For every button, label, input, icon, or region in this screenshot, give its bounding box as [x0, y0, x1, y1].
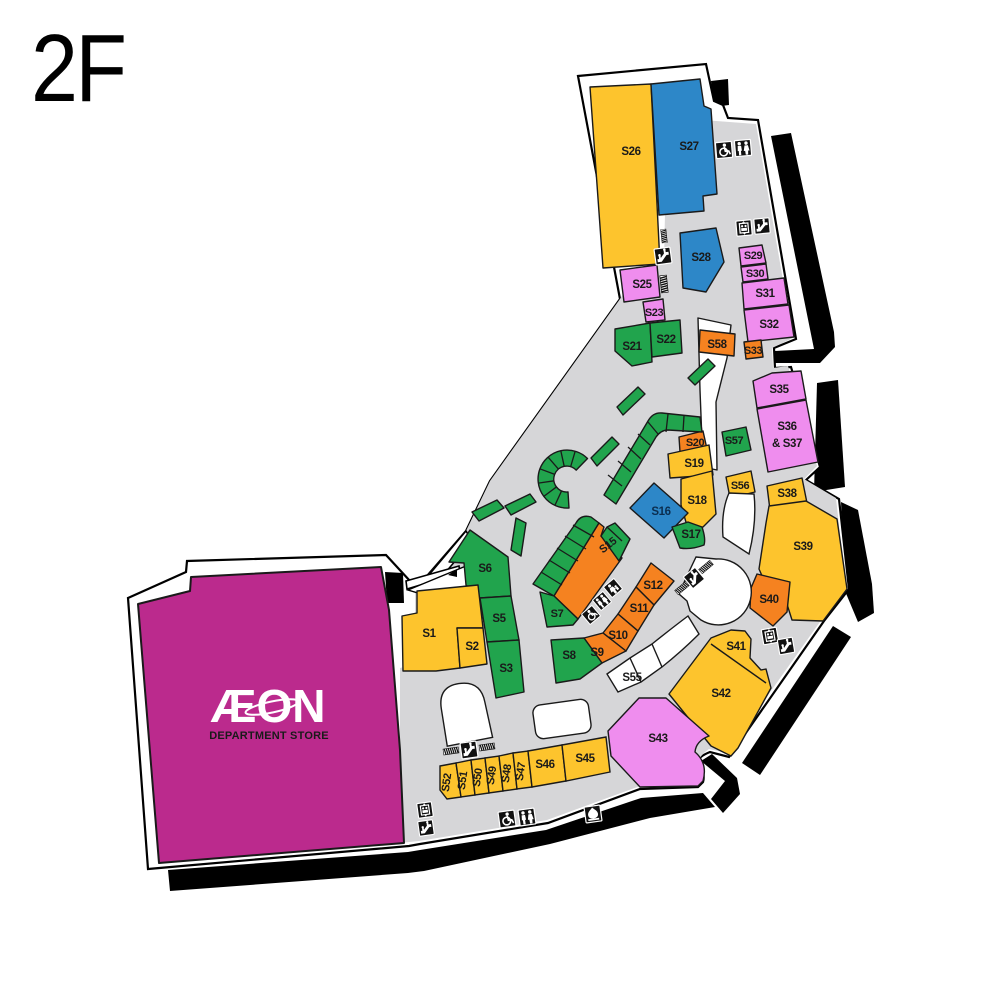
svg-text:S36: S36: [777, 421, 796, 433]
svg-text:S16: S16: [651, 506, 670, 518]
svg-text:2F: 2F: [31, 15, 124, 122]
svg-text:S22: S22: [656, 334, 675, 346]
svg-text:S42: S42: [711, 688, 730, 700]
svg-text:S35: S35: [769, 384, 789, 396]
svg-text:S2: S2: [465, 641, 478, 653]
svg-text:S18: S18: [687, 495, 707, 507]
svg-text:S21: S21: [622, 341, 642, 353]
svg-text:S25: S25: [632, 279, 652, 291]
svg-text:S47: S47: [514, 761, 528, 781]
svg-text:S55: S55: [622, 672, 642, 684]
svg-text:S3: S3: [499, 663, 512, 675]
svg-text:S28: S28: [691, 252, 711, 264]
svg-text:S33: S33: [744, 345, 763, 357]
svg-text:S11: S11: [630, 603, 650, 615]
svg-text:S56: S56: [731, 480, 750, 492]
svg-text:S43: S43: [648, 733, 667, 745]
svg-text:S20: S20: [686, 437, 705, 449]
svg-text:S51: S51: [456, 770, 470, 790]
svg-text:S12: S12: [643, 580, 662, 592]
svg-text:S7: S7: [551, 608, 564, 620]
svg-text:S46: S46: [535, 759, 554, 771]
svg-text:S1: S1: [422, 628, 436, 640]
svg-text:S40: S40: [759, 594, 778, 606]
svg-text:S48: S48: [500, 763, 514, 783]
svg-text:S49: S49: [485, 765, 499, 785]
svg-text:DEPARTMENT STORE: DEPARTMENT STORE: [209, 730, 329, 742]
svg-text:S30: S30: [746, 268, 765, 280]
svg-text:S52: S52: [440, 772, 454, 792]
svg-text:S9: S9: [590, 647, 603, 659]
svg-text:S17: S17: [681, 529, 700, 541]
svg-text:S29: S29: [744, 250, 763, 262]
svg-text:S38: S38: [777, 488, 797, 500]
svg-text:ÆON: ÆON: [211, 680, 326, 732]
svg-text:S19: S19: [684, 458, 703, 470]
svg-text:S23: S23: [645, 307, 664, 319]
svg-text:S27: S27: [679, 141, 698, 153]
svg-text:S50: S50: [471, 767, 485, 787]
svg-text:S10: S10: [608, 630, 627, 642]
svg-text:S39: S39: [793, 541, 812, 553]
svg-text:& S37: & S37: [772, 438, 802, 450]
svg-text:S31: S31: [755, 288, 775, 300]
svg-text:S5: S5: [492, 613, 506, 625]
svg-text:S8: S8: [562, 650, 576, 662]
svg-text:S6: S6: [478, 563, 491, 575]
svg-text:S57: S57: [725, 435, 744, 447]
svg-text:S58: S58: [707, 339, 727, 351]
svg-text:S41: S41: [726, 641, 746, 653]
svg-text:S32: S32: [759, 319, 778, 331]
svg-text:S26: S26: [621, 146, 640, 158]
svg-text:S45: S45: [575, 753, 595, 765]
